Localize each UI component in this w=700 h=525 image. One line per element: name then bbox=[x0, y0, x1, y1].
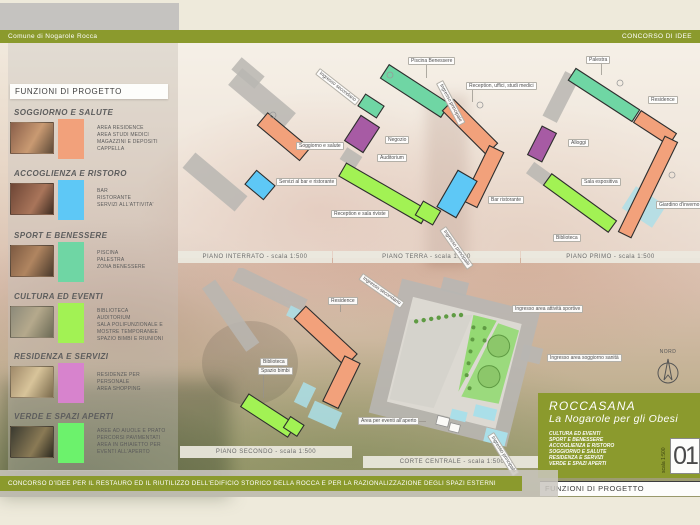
legend-item: AREA SHOPPING bbox=[97, 386, 173, 393]
section-title: RESIDENZA E SERVIZI bbox=[14, 352, 108, 361]
section-photo bbox=[10, 245, 54, 277]
footer-title-bar: CONCORSO D'IDEE PER IL RESTAURO ED IL RI… bbox=[0, 476, 522, 491]
sheet-scale: scala 1:500 bbox=[661, 439, 667, 473]
legend-item: PALESTRA bbox=[97, 257, 173, 264]
legend-item: SERVIZI ALL'ATTIVITA' bbox=[97, 202, 173, 209]
panel-function-label: FUNZIONI DI PROGETTO bbox=[540, 481, 700, 496]
room-servizi-bar bbox=[245, 170, 275, 199]
section-items: BAR RISTORANTE SERVIZI ALL'ATTIVITA' bbox=[97, 188, 173, 209]
room-negozio bbox=[345, 115, 380, 152]
section-title: SPORT E BENESSERE bbox=[14, 231, 107, 240]
caption-piano-interrato: PIANO INTERRATO - scala 1:500 bbox=[178, 251, 332, 263]
caption-piano-primo: PIANO PRIMO - scala 1:500 bbox=[521, 251, 700, 263]
legend-item: AREE AD AIUOLE E PRATO bbox=[97, 428, 173, 435]
legend-item: MAGAZZINI E DEPOSITI bbox=[97, 139, 173, 146]
plan-label: Residence bbox=[328, 297, 358, 305]
color-swatch bbox=[58, 119, 84, 159]
section-items: AREA RESIDENCE AREA STUDI MEDICI MAGAZZI… bbox=[97, 125, 173, 153]
section-photo bbox=[10, 366, 54, 398]
color-swatch bbox=[58, 303, 84, 343]
leader-line bbox=[472, 90, 473, 102]
function-item: VERDE E SPAZI APERTI bbox=[549, 461, 614, 467]
municipality-label: Comune di Nogarole Rocca bbox=[8, 33, 97, 40]
north-arrow-icon bbox=[655, 356, 681, 386]
legend-title: FUNZIONI DI PROGETTO bbox=[10, 84, 168, 99]
legend-item: PERCORSI PAVIMENTATI bbox=[97, 435, 173, 442]
section-photo bbox=[10, 306, 54, 338]
plan-label: Palestra bbox=[586, 56, 610, 64]
legend-item: ZONA BENESSERE bbox=[97, 264, 173, 271]
legend-item: RISTORANTE bbox=[97, 195, 173, 202]
plan-label: Ingresso area soggiorno sanità bbox=[547, 354, 622, 362]
plan-label: Soggiorno e salute bbox=[296, 142, 344, 150]
section-title: VERDE E SPAZI APERTI bbox=[14, 412, 113, 421]
legend-item: AREA STUDI MEDICI bbox=[97, 132, 173, 139]
competition-label: CONCORSO DI IDEE bbox=[622, 33, 692, 40]
header-bar: Comune di Nogarole Rocca CONCORSO DI IDE… bbox=[0, 30, 700, 43]
plan-label: Alloggi bbox=[568, 139, 589, 147]
section-title: ACCOGLIENZA E RISTORO bbox=[14, 169, 127, 178]
section-items: RESIDENZE PER PERSONALE AREA SHOPPING bbox=[97, 372, 173, 393]
section-title: SOGGIORNO E SALUTE bbox=[14, 108, 113, 117]
color-swatch bbox=[58, 423, 84, 463]
plan-label: Biblioteca bbox=[553, 234, 581, 242]
project-subtitle: La Nogarole per gli Obesi bbox=[549, 413, 678, 425]
plan-label: Reception e sala riviste bbox=[331, 210, 389, 218]
color-swatch bbox=[58, 363, 84, 403]
plan-label: Servizi al bar e ristorante bbox=[276, 178, 337, 186]
legend-item: RESIDENZE PER PERSONALE bbox=[97, 372, 173, 386]
color-swatch bbox=[58, 180, 84, 220]
legend-item: SALA POLIFUNZIONALE E MOSTRE TEMPORANEE bbox=[97, 322, 173, 336]
section-title: CULTURA ED EVENTI bbox=[14, 292, 103, 301]
leader-line bbox=[263, 374, 264, 398]
north-label: NORD bbox=[653, 349, 683, 355]
caption-piano-secondo: PIANO SECONDO - scala 1:500 bbox=[180, 446, 352, 458]
section-items: PISCINA PALESTRA ZONA BENESSERE bbox=[97, 250, 173, 271]
caption-piano-terra: PIANO TERRA - scala 1:500 bbox=[333, 251, 520, 263]
plan-label: Negozio bbox=[385, 136, 409, 144]
legend-item: BAR bbox=[97, 188, 173, 195]
legend-item: BIBLIOTECA bbox=[97, 308, 173, 315]
color-swatch bbox=[58, 242, 84, 282]
plan-label: Piscina Benessere bbox=[408, 57, 455, 65]
legend-item: CAPPELLA bbox=[97, 146, 173, 153]
function-list: CULTURA ED EVENTI SPORT E BENESSERE ACCO… bbox=[549, 431, 614, 467]
project-name: ROCCASANA bbox=[549, 399, 636, 413]
plan-label: Area per eventi all'aperto bbox=[358, 417, 419, 425]
section-items: BIBLIOTECA AUDITORIUM SALA POLIFUNZIONAL… bbox=[97, 308, 173, 343]
top-left-gray-block bbox=[0, 3, 179, 30]
legend-item: SPAZIO BIMBI E RIUNIONI bbox=[97, 336, 173, 343]
plan-label: Spazio bimbi bbox=[258, 367, 293, 375]
plan-label: Ingresso area attività sportive bbox=[512, 305, 583, 313]
section-photo bbox=[10, 122, 54, 154]
sheet-number: 01 bbox=[670, 438, 700, 474]
plan-piano-interrato bbox=[178, 55, 338, 255]
plan-label: Bar ristorante bbox=[488, 196, 524, 204]
section-photo bbox=[10, 426, 54, 458]
plan-label: Auditorium bbox=[377, 154, 407, 162]
section-photo bbox=[10, 183, 54, 215]
room-alloggi bbox=[528, 126, 557, 162]
legend-item: AUDITORIUM bbox=[97, 315, 173, 322]
wing-palestra bbox=[568, 68, 639, 121]
competition-board: Comune di Nogarole Rocca CONCORSO DI IDE… bbox=[0, 0, 700, 525]
title-block: ROCCASANA La Nogarole per gli Obesi CULT… bbox=[538, 393, 700, 478]
legend-item: PISCINA bbox=[97, 250, 173, 257]
plan-label: Biblioteca bbox=[260, 358, 288, 366]
section-items: AREE AD AIUOLE E PRATO PERCORSI PAVIMENT… bbox=[97, 428, 173, 456]
plan-label: Residence bbox=[648, 96, 678, 104]
legend-item: AREA RESIDENCE bbox=[97, 125, 173, 132]
plan-label: Reception, uffici, studi medici bbox=[466, 82, 537, 90]
legend-item: AREA IN GHIAIETTO PER EVENTI ALL'APERTO bbox=[97, 442, 173, 456]
plan-piano-primo bbox=[520, 55, 700, 260]
plan-label: Giardino d'inverno bbox=[656, 201, 700, 209]
plan-label: Sala espositiva bbox=[581, 178, 621, 186]
